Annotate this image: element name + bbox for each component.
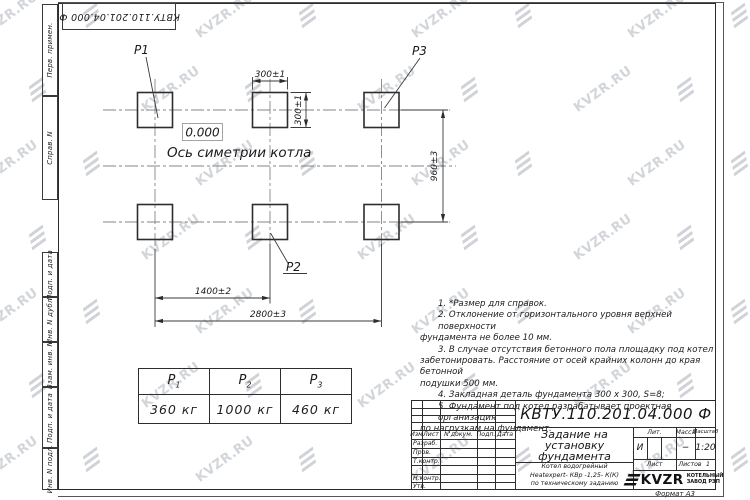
dim-height-right: 300±1 [294,95,304,125]
load-table-value-row: 360 кг 1000 кг 460 кг [139,395,352,424]
row-tkontr: Т.контр. [413,457,443,465]
note-line: забетонировать. Расстояние от осей крайн… [420,356,725,379]
load-table-header-row: Р1 Р2 Р3 [139,369,352,395]
elevation-value: 0.000 [185,126,220,140]
point-label-p1: Р1 [134,43,149,57]
note-line: подушки 500 мм. [420,379,725,390]
row-utv: Утв. [413,482,443,490]
load-table-header: Р3 [281,369,352,395]
col-izm: Изм [411,430,422,439]
load-table-value: 360 кг [139,395,210,424]
designation: КВТУ.110.201.04.000 Ф [517,402,715,426]
scale-value: 1:20 [695,437,716,459]
sheets-label: Листов [678,459,702,470]
dim-width-top: 300±1 [255,70,285,80]
dim-col-spacing: 1400±2 [195,287,231,297]
tb-line [661,437,662,459]
company-cell: KVZR КОТЕЛЬНЫЙ ЗАВОД РЭП [634,470,715,490]
note-line: фундамента не более 10 мм. [420,333,725,344]
note-line: 1. *Размер для справок. [420,299,725,310]
tb-line [411,465,516,466]
row-razrab: Разраб. [413,439,443,448]
point-label-p3: Р3 [412,44,427,58]
dim-total-width: 2800±3 [250,310,286,320]
leader-lines [146,57,420,274]
load-table-value: 1000 кг [210,395,281,424]
lit-value: И [633,437,647,459]
tb-line [477,400,478,490]
note-line: 2. Отклонение от горизонтального уровня … [420,310,725,333]
col-data: Дата [495,430,515,439]
scale-label: Масштаб [695,427,716,437]
row-prov: Пров. [413,448,443,457]
centerlines [103,79,456,249]
tb-line [411,422,516,423]
tb-line [411,415,516,416]
load-table: Р1 Р2 Р3 360 кг 1000 кг 460 кг [138,368,352,424]
tb-line [411,408,516,409]
load-table-header: Р1 [139,369,210,395]
sheets-value: 1 [702,459,714,470]
document-title: Задание на установку фундамента [517,429,632,461]
dim-row-spacing: 960±3 [430,151,440,182]
col-podp: Подп. [477,430,495,439]
load-table-value: 460 кг [281,395,352,424]
product-subtitle: Котел водогрейный Heatexpert- КВр -1,25-… [517,463,632,489]
lit-label: Лит. [633,427,676,437]
col-list: Лист [422,430,440,439]
tb-line [647,437,648,459]
company-name: КОТЕЛЬНЫЙ ЗАВОД РЭП [687,474,724,485]
mass-value: − [676,437,695,459]
drawing-sheet: KVZR.RUKVZR.RUKVZR.RUKVZR.RUKVZR.RUKVZR.… [0,0,750,500]
tb-line [515,400,516,490]
tb-line [495,400,496,490]
sheet-label: Лист [633,459,676,470]
note-line: 3. В случае отсутствия бетонного пола пл… [420,345,725,356]
col-ndokum: N докум. [440,430,477,439]
row-nkontr: Н.контр. [413,474,443,482]
point-label-p2: Р2 [286,260,301,274]
load-table-header: Р2 [210,369,281,395]
symmetry-axis-label: Ось симетрии котла [167,145,311,161]
format-label: Формат А3 [630,490,720,498]
kvzr-logo-text: KVZR [641,472,684,488]
